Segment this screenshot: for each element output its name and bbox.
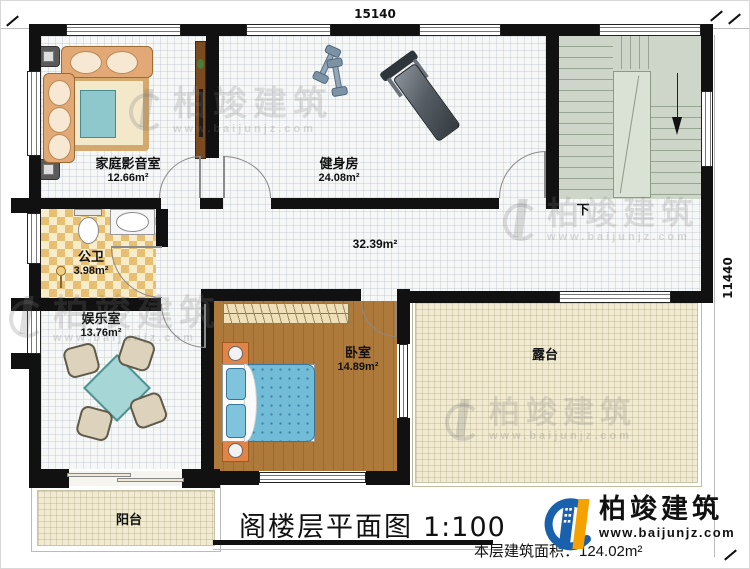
toilet-tank: [74, 209, 102, 216]
room-name: 公卫: [74, 250, 109, 265]
sofa-cushion: [48, 107, 71, 133]
wall-segment: [11, 298, 161, 311]
toilet: [78, 217, 99, 244]
wall-segment: [671, 291, 713, 303]
sofa: [61, 46, 153, 78]
brand-name: 柏竣建筑: [599, 495, 735, 525]
room-label-balcony: 阳台: [116, 513, 142, 528]
wall-segment: [214, 289, 361, 301]
wall-segment: [11, 198, 161, 209]
pillow: [226, 368, 246, 400]
dimension-top: 15140: [354, 7, 396, 21]
dimension-extension-line: [713, 28, 750, 29]
stairs-direction-label: 下: [576, 203, 589, 218]
wall-segment: [366, 471, 410, 485]
dimension-tick: [710, 10, 723, 21]
stairs-direction-line: [677, 73, 678, 119]
window: [27, 213, 41, 264]
sliding-door-panel: [67, 473, 131, 477]
terrace-railing: [412, 299, 702, 487]
dumbbell-plate: [331, 86, 348, 98]
lamp: [228, 346, 243, 361]
room-name: 露台: [532, 348, 558, 363]
dimension-tick: [6, 15, 19, 26]
wardrobe: [223, 303, 349, 324]
door-leaf: [199, 156, 201, 198]
sink: [116, 212, 149, 232]
room-area: 14.89m²: [338, 361, 379, 374]
door-leaf: [395, 301, 397, 337]
tv: [199, 89, 203, 137]
wall-segment: [271, 198, 499, 209]
room-name: 娱乐室: [81, 312, 122, 327]
wall-pier: [11, 353, 29, 369]
room-area: 3.98m²: [74, 265, 109, 278]
wall-segment: [29, 354, 41, 469]
room-label-home-theater: 家庭影音室 12.66m²: [95, 157, 160, 185]
brand-logo-text: 柏竣建筑 www.baijunjz.com: [599, 495, 735, 540]
title-underline: [213, 540, 493, 545]
room-name: 阳台: [116, 513, 142, 528]
wall-segment: [29, 24, 41, 71]
room-name: 健身房: [319, 157, 360, 172]
brand-logo: 柏竣建筑 www.baijunjz.com: [539, 495, 735, 559]
dimension-tick: [728, 13, 741, 24]
stairs-void: [613, 71, 651, 198]
window: [246, 24, 331, 36]
mattress: [248, 364, 315, 442]
plan-scale: 1:100: [423, 512, 506, 543]
wall-segment: [156, 209, 168, 247]
window: [27, 71, 41, 156]
wall-segment: [406, 291, 559, 303]
room-area: 13.76m²: [81, 327, 122, 340]
stairs-down-label: 下: [576, 203, 589, 218]
stairs-steps-right: [649, 96, 701, 199]
coffee-table: [80, 90, 116, 138]
wall-segment: [331, 24, 419, 36]
lamp: [228, 443, 243, 458]
wall-segment: [206, 36, 219, 158]
wall-segment: [546, 24, 559, 209]
dimension-extension-line: [714, 35, 715, 557]
room-name: 家庭影音室: [95, 157, 160, 172]
window: [419, 24, 501, 36]
terrace-deck: [415, 302, 698, 483]
wall-segment: [701, 167, 713, 303]
floor-drain-stem: [60, 276, 62, 288]
door-leaf: [204, 304, 206, 348]
sofa-cushion: [70, 51, 102, 74]
stairs-steps-left: [559, 36, 613, 199]
room-label-gym: 健身房 24.08m²: [319, 157, 360, 185]
dumbbell: [328, 57, 348, 97]
brand-website: www.baijunjz.com: [599, 525, 735, 540]
room-label-bathroom: 公卫 3.98m²: [74, 250, 109, 278]
sofa-cushion: [48, 134, 71, 160]
wall-segment: [701, 24, 713, 91]
pillow: [226, 404, 246, 438]
stairs-steps-top: [613, 36, 649, 69]
door-leaf: [111, 246, 162, 248]
floor-drain: [56, 266, 66, 276]
floorplan-page: 15140 11440: [0, 0, 750, 569]
speaker-cone: [43, 51, 54, 62]
plan-title: 阁楼层平面图1:100: [239, 505, 506, 544]
wall-segment: [29, 469, 69, 488]
dimension-extension-line: [1, 28, 29, 29]
dimension-right: 11440: [721, 257, 735, 299]
plan-title-text: 阁楼层平面图: [239, 512, 413, 542]
window: [701, 91, 713, 167]
door-leaf: [223, 156, 225, 198]
room-area: 12.66m²: [95, 172, 160, 185]
sofa-cushion: [106, 51, 138, 74]
wall-segment: [182, 469, 220, 488]
window: [66, 24, 181, 36]
door-leaf: [544, 151, 546, 198]
sofa: [43, 73, 75, 163]
wall-segment: [29, 264, 41, 302]
brand-logo-icon: [539, 495, 593, 559]
room-label-terrace: 露台: [532, 348, 558, 363]
room-area: 24.08m²: [319, 172, 360, 185]
speaker-cone: [43, 164, 54, 175]
dumbbell-plate: [312, 70, 330, 85]
wall-segment: [181, 24, 246, 36]
dumbbell-plate: [326, 57, 343, 69]
down-arrow-icon: [672, 117, 682, 135]
room-area: 32.39m²: [353, 237, 398, 251]
room-name: 卧室: [338, 346, 379, 361]
room-label-corridor: 32.39m²: [353, 237, 398, 251]
plant: [197, 59, 204, 69]
sofa-cushion: [48, 80, 71, 106]
window: [559, 291, 671, 303]
window: [599, 24, 701, 36]
window: [259, 472, 366, 483]
wall-segment: [200, 198, 223, 209]
room-label-entertainment: 娱乐室 13.76m²: [81, 312, 122, 340]
window: [399, 344, 408, 418]
room-label-bedroom: 卧室 14.89m²: [338, 346, 379, 374]
sliding-door-panel: [117, 478, 184, 482]
